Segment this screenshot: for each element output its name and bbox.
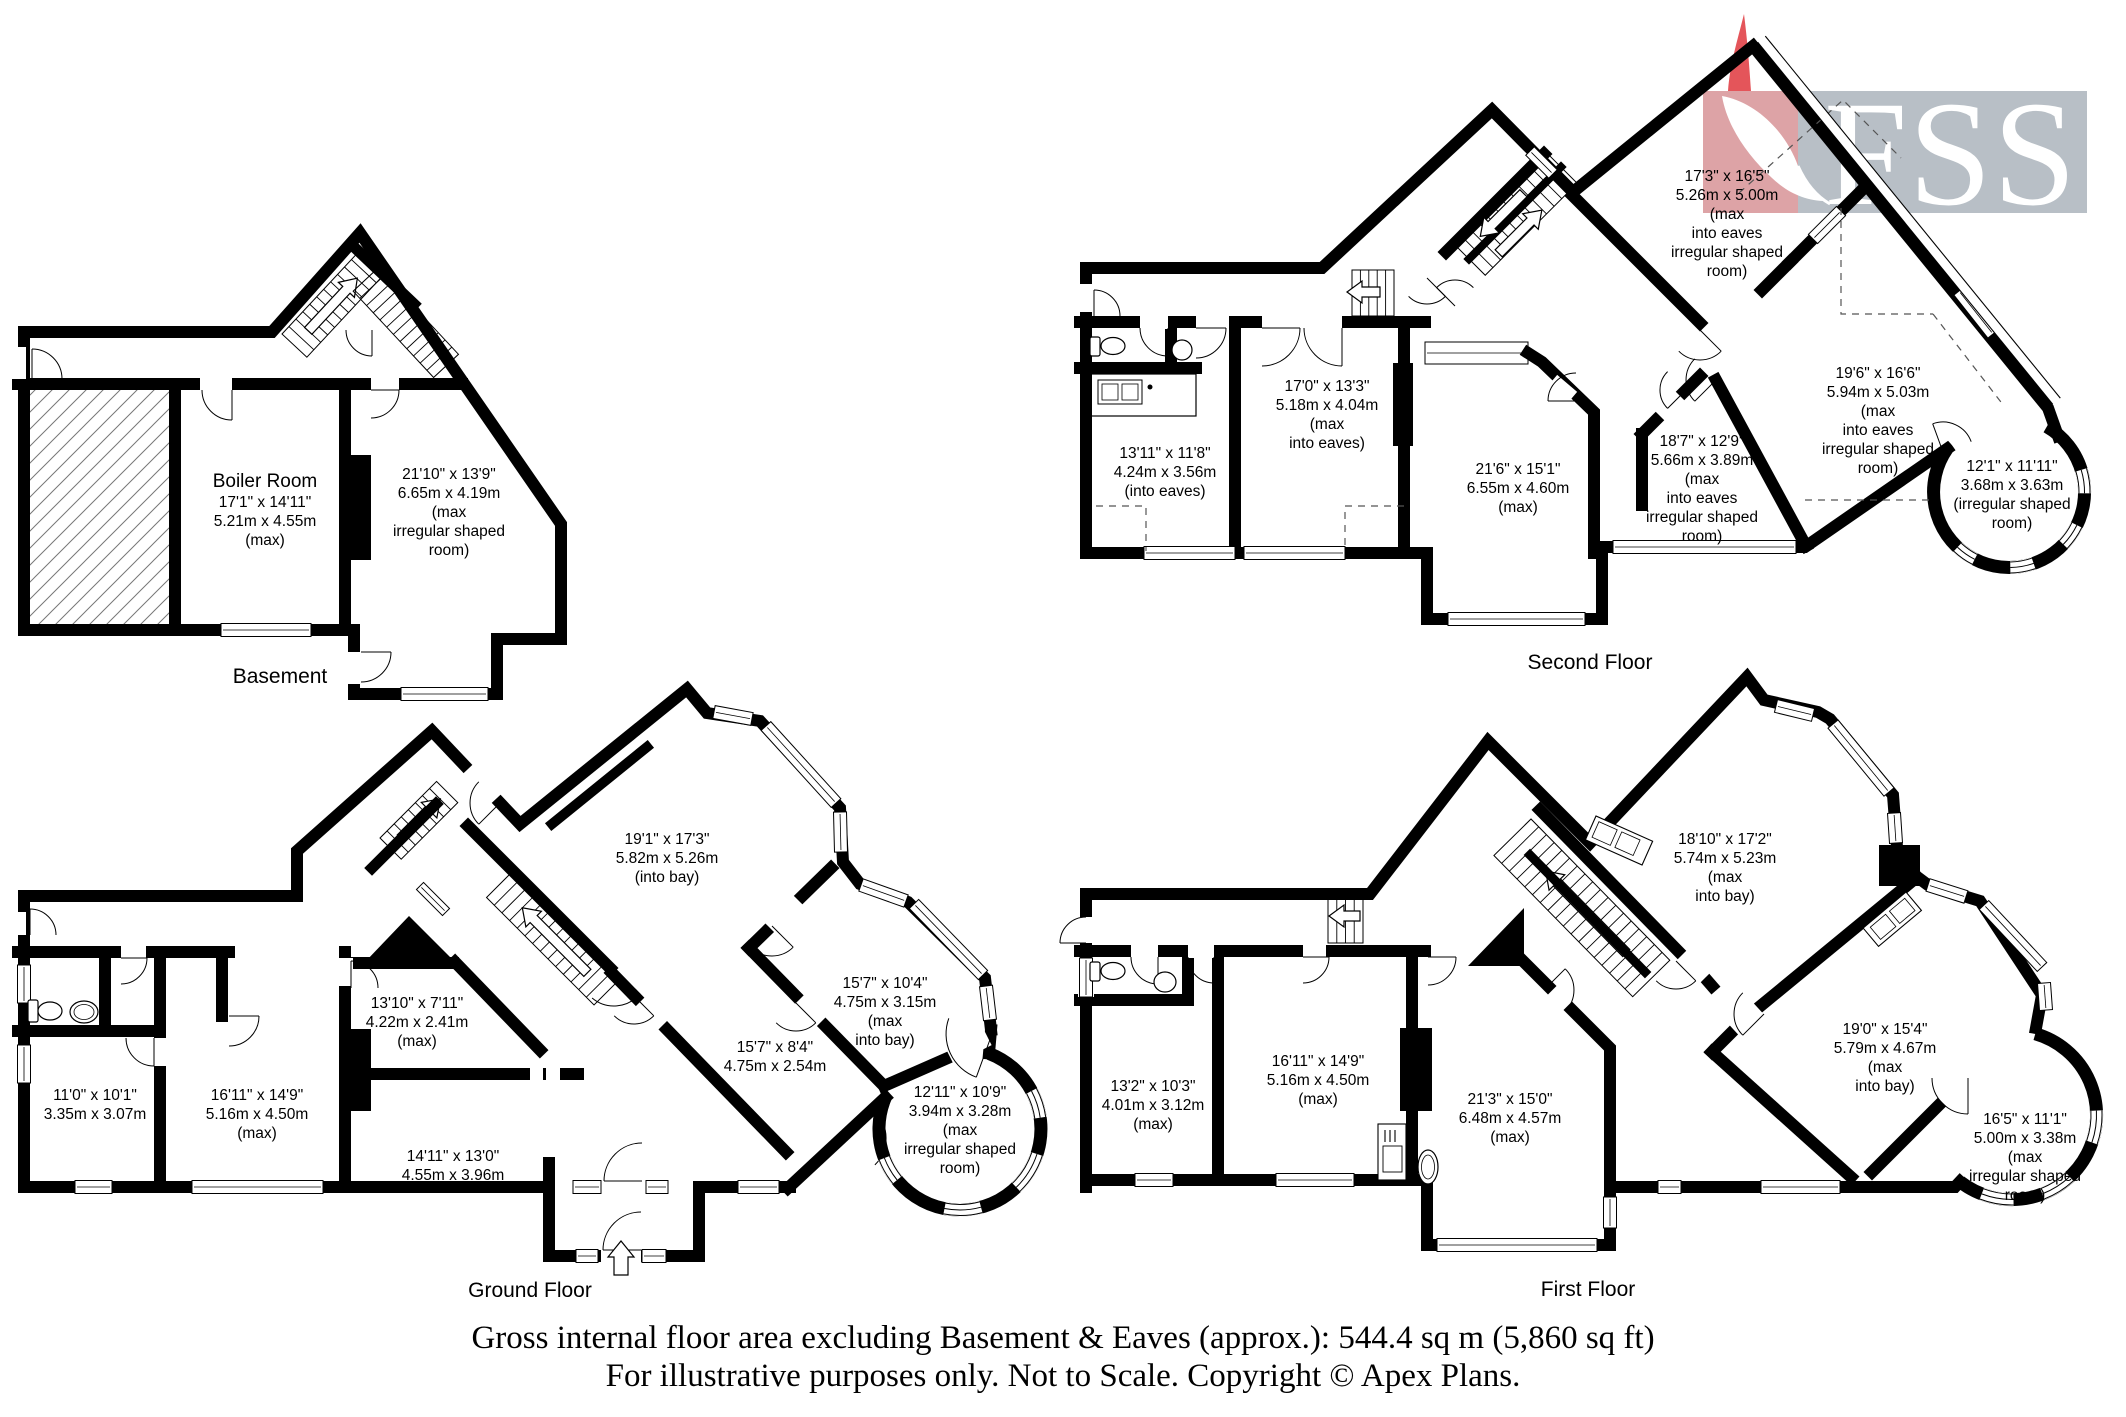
svg-text:5.00m x 3.38m: 5.00m x 3.38m (1974, 1130, 2077, 1147)
svg-text:18'7" x 12'9": 18'7" x 12'9" (1659, 433, 1744, 450)
svg-text:irregular shaped: irregular shaped (1822, 441, 1934, 458)
svg-text:(max: (max (1868, 1059, 1903, 1076)
svg-text:5.74m x 5.23m: 5.74m x 5.23m (1674, 850, 1777, 867)
svg-text:room): room) (1682, 528, 1722, 545)
svg-text:13'11" x 11'8": 13'11" x 11'8" (1119, 445, 1210, 462)
svg-text:18'10" x 17'2": 18'10" x 17'2" (1678, 831, 1772, 848)
svg-text:3.35m x 3.07m: 3.35m x 3.07m (44, 1106, 147, 1123)
svg-text:(max): (max) (245, 532, 285, 549)
svg-text:16'11" x 14'9": 16'11" x 14'9" (211, 1087, 303, 1104)
svg-text:(max): (max) (1498, 499, 1538, 516)
svg-text:For illustrative purposes only: For illustrative purposes only. Not to S… (606, 1358, 1521, 1394)
svg-text:15'7" x 10'4": 15'7" x 10'4" (842, 975, 927, 992)
svg-text:(max): (max) (1490, 1129, 1530, 1146)
svg-text:4.24m x 3.56m: 4.24m x 3.56m (1114, 464, 1217, 481)
svg-text:19'1" x 17'3": 19'1" x 17'3" (624, 831, 709, 848)
svg-text:into bay): into bay) (1855, 1078, 1914, 1095)
svg-text:(max): (max) (397, 1033, 437, 1050)
svg-text:Ground Floor: Ground Floor (468, 1279, 592, 1302)
svg-text:irregular shaped: irregular shaped (1671, 244, 1783, 261)
svg-text:17'3" x 16'5": 17'3" x 16'5" (1684, 168, 1769, 185)
svg-text:(irregular shaped: (irregular shaped (1953, 496, 2070, 513)
svg-text:21'3" x 15'0": 21'3" x 15'0" (1467, 1091, 1552, 1108)
svg-text:13'10" x 7'11": 13'10" x 7'11" (371, 995, 463, 1012)
svg-text:16'11" x 14'9": 16'11" x 14'9" (1272, 1053, 1364, 1070)
svg-text:4.55m x 3.96m: 4.55m x 3.96m (402, 1167, 505, 1184)
svg-text:(max: (max (2008, 1149, 2043, 1166)
svg-text:13'2" x 10'3": 13'2" x 10'3" (1110, 1078, 1195, 1095)
svg-text:21'6" x 15'1": 21'6" x 15'1" (1475, 461, 1560, 478)
svg-text:15'7" x 8'4": 15'7" x 8'4" (737, 1039, 813, 1056)
svg-text:19'6" x 16'6": 19'6" x 16'6" (1835, 365, 1920, 382)
svg-text:room): room) (429, 542, 469, 559)
svg-text:16'5" x 11'1": 16'5" x 11'1" (1983, 1111, 2067, 1128)
svg-text:5.66m x 3.89m: 5.66m x 3.89m (1651, 452, 1754, 469)
svg-text:into eaves: into eaves (1667, 490, 1738, 507)
svg-text:17'0" x 13'3": 17'0" x 13'3" (1284, 378, 1369, 395)
svg-text:(max): (max) (237, 1125, 277, 1142)
svg-text:into bay): into bay) (1695, 888, 1754, 905)
svg-text:Basement: Basement (233, 665, 328, 688)
svg-text:4.01m x 3.12m: 4.01m x 3.12m (1102, 1097, 1205, 1114)
svg-text:Gross internal floor area excl: Gross internal floor area excluding Base… (471, 1320, 1654, 1356)
svg-text:(max: (max (1710, 206, 1745, 223)
svg-text:6.48m x 4.57m: 6.48m x 4.57m (1459, 1110, 1562, 1127)
svg-text:4.75m x 3.15m: 4.75m x 3.15m (834, 994, 937, 1011)
svg-text:into eaves): into eaves) (1289, 435, 1365, 452)
svg-text:irregular shaped: irregular shaped (1969, 1168, 2081, 1185)
svg-text:17'1" x 14'11": 17'1" x 14'11" (219, 494, 311, 511)
svg-text:(into bay): (into bay) (635, 869, 700, 886)
svg-text:Second Floor: Second Floor (1528, 651, 1653, 674)
svg-text:5.79m x 4.67m: 5.79m x 4.67m (1834, 1040, 1937, 1057)
svg-text:irregular shaped: irregular shaped (1646, 509, 1758, 526)
svg-text:12'11" x 10'9": 12'11" x 10'9" (914, 1084, 1006, 1101)
svg-text:(max: (max (432, 504, 467, 521)
svg-text:21'10" x 13'9": 21'10" x 13'9" (402, 466, 496, 483)
svg-text:(max: (max (1685, 471, 1720, 488)
svg-text:14'11" x 13'0": 14'11" x 13'0" (407, 1148, 499, 1165)
svg-text:(max: (max (868, 1013, 903, 1030)
svg-text:(max): (max) (1133, 1116, 1173, 1133)
svg-text:5.82m x 5.26m: 5.82m x 5.26m (616, 850, 719, 867)
svg-text:11'0" x 10'1": 11'0" x 10'1" (53, 1087, 137, 1104)
svg-text:into eaves: into eaves (1692, 225, 1763, 242)
svg-text:3.94m x 3.28m: 3.94m x 3.28m (909, 1103, 1012, 1120)
svg-text:into bay): into bay) (855, 1032, 914, 1049)
svg-text:(into eaves): (into eaves) (1125, 483, 1206, 500)
svg-text:3.68m x 3.63m: 3.68m x 3.63m (1961, 477, 2064, 494)
svg-text:room): room) (1992, 515, 2032, 532)
svg-text:(max: (max (1861, 403, 1896, 420)
svg-text:room): room) (2005, 1187, 2045, 1204)
svg-text:19'0" x 15'4": 19'0" x 15'4" (1842, 1021, 1927, 1038)
svg-text:6.55m x 4.60m: 6.55m x 4.60m (1467, 480, 1570, 497)
svg-text:into eaves: into eaves (1843, 422, 1914, 439)
svg-text:5.18m x 4.04m: 5.18m x 4.04m (1276, 397, 1379, 414)
svg-text:First Floor: First Floor (1541, 1278, 1636, 1301)
svg-text:room): room) (940, 1160, 980, 1177)
svg-text:4.75m x 2.54m: 4.75m x 2.54m (724, 1058, 827, 1075)
svg-text:(max: (max (943, 1122, 978, 1139)
svg-text:(max: (max (1310, 416, 1345, 433)
svg-text:5.16m x 4.50m: 5.16m x 4.50m (206, 1106, 309, 1123)
svg-text:5.26m x 5.00m: 5.26m x 5.00m (1676, 187, 1779, 204)
svg-text:(max: (max (1708, 869, 1743, 886)
svg-text:5.16m x 4.50m: 5.16m x 4.50m (1267, 1072, 1370, 1089)
svg-text:Boiler Room: Boiler Room (213, 471, 318, 492)
svg-text:12'1" x 11'11": 12'1" x 11'11" (1966, 458, 2057, 475)
svg-text:4.22m x 2.41m: 4.22m x 2.41m (366, 1014, 469, 1031)
svg-text:room): room) (1858, 460, 1898, 477)
svg-text:(max): (max) (1298, 1091, 1338, 1108)
svg-text:5.21m x 4.55m: 5.21m x 4.55m (214, 513, 317, 530)
svg-text:5.94m x 5.03m: 5.94m x 5.03m (1827, 384, 1930, 401)
svg-text:room): room) (1707, 263, 1747, 280)
svg-text:irregular shaped: irregular shaped (904, 1141, 1016, 1158)
svg-text:irregular shaped: irregular shaped (393, 523, 505, 540)
svg-text:6.65m x 4.19m: 6.65m x 4.19m (398, 485, 501, 502)
